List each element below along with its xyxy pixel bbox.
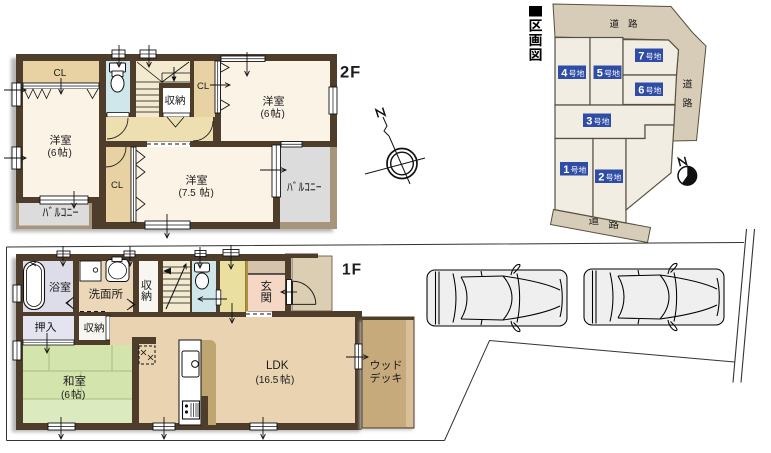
svg-text:3: 3 <box>586 116 592 128</box>
svg-text:7: 7 <box>638 51 644 63</box>
svg-text:(7.5: (7.5 <box>179 188 197 199</box>
svg-text:1: 1 <box>563 164 569 176</box>
svg-text:6: 6 <box>638 85 644 97</box>
svg-text:): ) <box>282 109 285 120</box>
svg-text:2: 2 <box>598 172 604 184</box>
svg-text:(6: (6 <box>48 148 57 159</box>
svg-text:(6: (6 <box>261 109 270 120</box>
svg-text:CL: CL <box>111 180 123 191</box>
svg-text:CL: CL <box>197 81 209 92</box>
svg-text:4: 4 <box>561 68 568 80</box>
svg-text:2F: 2F <box>340 64 361 82</box>
svg-text:(6: (6 <box>61 390 70 401</box>
svg-text:): ) <box>291 375 294 386</box>
svg-text:CL: CL <box>54 68 67 79</box>
svg-text:LDK: LDK <box>266 360 289 372</box>
svg-text:): ) <box>69 148 72 159</box>
svg-text:): ) <box>211 188 214 199</box>
svg-text:1F: 1F <box>342 262 362 279</box>
svg-text:): ) <box>82 390 85 401</box>
svg-text:(16.5: (16.5 <box>256 375 279 386</box>
svg-text:5: 5 <box>597 68 603 80</box>
